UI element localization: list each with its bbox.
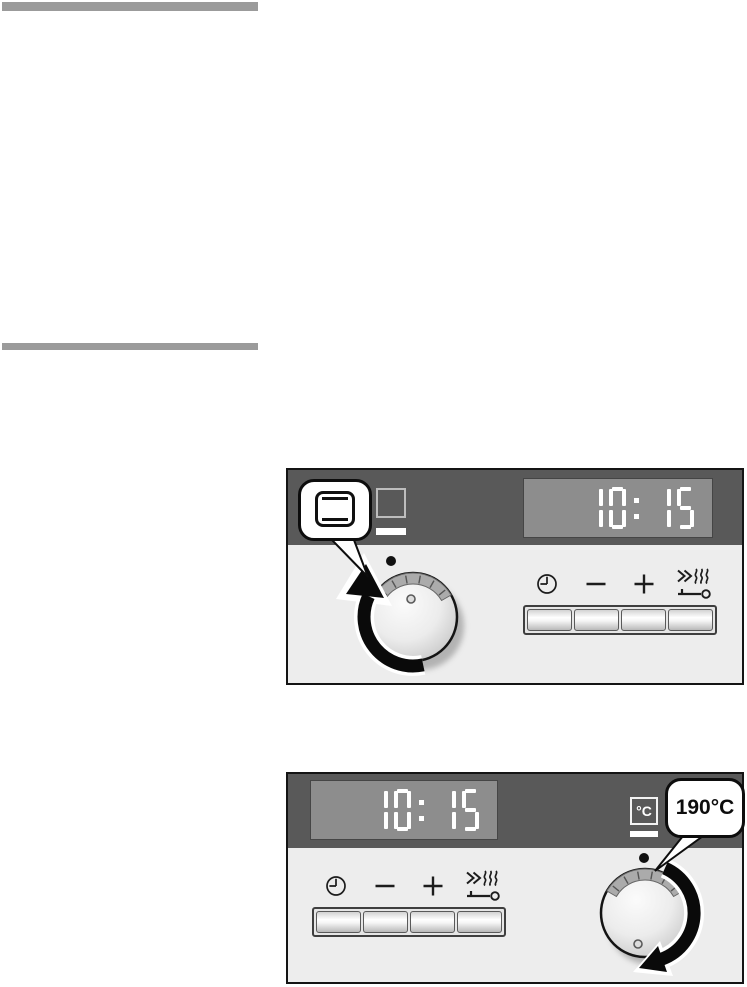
top-bottom-heat-icon	[315, 491, 355, 527]
button-icon-row	[312, 868, 506, 904]
plus-button	[410, 911, 455, 933]
function-knob-graphic	[318, 540, 498, 690]
minus-button	[363, 911, 408, 933]
temp-unit-label: °C	[636, 803, 652, 819]
symbol-underline	[376, 528, 406, 535]
clock-time	[311, 781, 497, 839]
knob-zero-dot	[639, 853, 649, 863]
temperature-value: 190°C	[676, 796, 735, 820]
rapid-heat-childlock-button	[668, 609, 713, 631]
button-strip	[523, 605, 717, 635]
plus-icon	[620, 566, 669, 602]
button-controls	[523, 566, 717, 635]
knob-pointer-mark	[634, 940, 642, 948]
button-strip	[312, 907, 506, 937]
clock-display	[523, 478, 713, 538]
minus-icon	[361, 868, 410, 904]
temperature-unit-icon: °C	[630, 797, 658, 825]
manual-page: °C 190°C	[0, 0, 747, 987]
callout-temperature: 190°C	[665, 778, 745, 838]
timer-button	[527, 609, 572, 631]
clock-time	[524, 479, 712, 537]
minus-button	[574, 609, 619, 631]
control-panel-temperature: °C 190°C	[286, 772, 744, 984]
clock-icon	[523, 566, 572, 602]
rapid-heat-childlock-button	[457, 911, 502, 933]
section-rule	[2, 343, 258, 350]
oven-function-square-icon	[376, 488, 406, 518]
knob-pointer-mark	[407, 595, 415, 603]
button-icon-row	[523, 566, 717, 602]
section-rule	[2, 2, 258, 11]
callout-function-symbol	[298, 479, 372, 541]
rapid-heat-key-icon	[458, 868, 507, 904]
plus-icon	[409, 868, 458, 904]
rapid-heat-key-icon	[669, 566, 718, 602]
timer-button	[316, 911, 361, 933]
clock-icon	[312, 868, 361, 904]
control-panel-function-select	[286, 468, 744, 685]
symbol-underline	[630, 831, 658, 837]
button-controls	[312, 868, 506, 937]
knob-zero-dot	[386, 556, 396, 566]
clock-display	[310, 780, 498, 840]
minus-icon	[572, 566, 621, 602]
temperature-knob-graphic	[555, 844, 740, 984]
plus-button	[621, 609, 666, 631]
